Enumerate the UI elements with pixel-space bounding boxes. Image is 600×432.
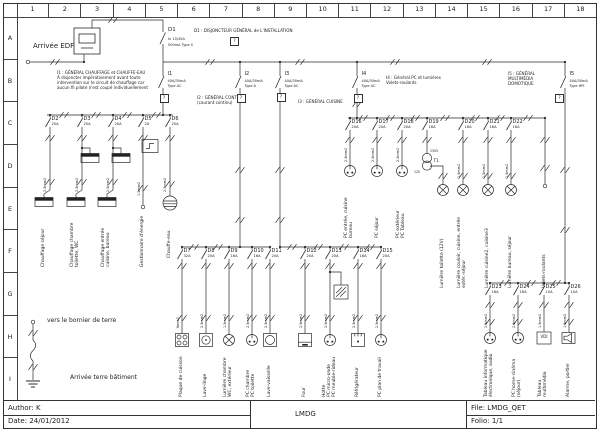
breaker-amp: 10A [571, 290, 578, 294]
wire-size: 1.5mm2 [563, 314, 567, 328]
wire-size: 6mm2 [176, 317, 180, 328]
folio-field: Folio: 1/1 [471, 417, 503, 425]
folio-ref-box: ? [354, 94, 363, 103]
main-breaker-note: D1 : DISJONCTEUR GÉNÉRAL de L'INSTALLATI… [194, 28, 293, 33]
title-block-divider [3, 415, 250, 416]
breaker-amp: 20A [383, 254, 390, 258]
socket-icon [376, 335, 387, 346]
breaker-id: D19 [429, 119, 439, 125]
socket-icon [247, 335, 258, 346]
diff-id: I1 [168, 71, 173, 77]
wire-size: 2.5mm2 [106, 178, 110, 192]
breaker-id: D20 [465, 119, 475, 125]
breaker-id: D5 [145, 116, 152, 122]
diff-id: I2 [245, 71, 250, 77]
load-label: Chauffe-eau [168, 231, 173, 258]
breaker-amp: 20A [172, 122, 179, 126]
breaker-amp: 16A [254, 254, 261, 258]
socket-icon [397, 166, 408, 177]
load-label: Réfrigérateur [356, 367, 361, 397]
heater-icon [98, 198, 116, 207]
heater-icon [67, 198, 85, 207]
breaker-id: D22 [513, 119, 523, 125]
folio-ref-box: ? [277, 93, 286, 102]
earth-top-label: vers le bornier de terre [47, 317, 116, 324]
breaker-id: D3 [84, 116, 91, 122]
diff-note: I1 : GÉNÉRAL CHAUFFAGE et CHAUFFE-EAU À … [57, 70, 148, 90]
breaker-amp: 20A [84, 122, 91, 126]
diff-type: Type AC [168, 84, 182, 88]
breaker-amp: 10A [546, 290, 553, 294]
load-label: Plaque de cuisson [180, 356, 185, 397]
socket-icon [372, 166, 383, 177]
lamp-icon [458, 185, 469, 196]
wire-size: 2.5mm2 [484, 314, 488, 328]
load-label: PC séjour [376, 217, 381, 238]
wire-size: 1.5mm2 [482, 164, 486, 178]
main-breaker-rating: In 10/45A [168, 37, 185, 41]
wire-size: 1.5mm2 [505, 164, 509, 178]
breaker-amp: 16A [492, 290, 499, 294]
breaker-amp: 20A [208, 254, 215, 258]
socket-icon [325, 335, 336, 346]
breaker-amp: 20A [404, 125, 411, 129]
transformer-primary-voltage: 230V [430, 149, 438, 153]
lamp-icon [483, 185, 494, 196]
transformer-icon [422, 153, 431, 170]
breaker-id: D21 [490, 119, 500, 125]
breaker-amp: 16A [520, 290, 527, 294]
load-label: Four [303, 387, 308, 397]
folio-ref-box: ? [555, 94, 564, 103]
folio-ref-box: ? [237, 94, 246, 103]
diff-rating: 40A/30mA [570, 79, 588, 83]
load-label: Lumière chambre WC, extérieur [224, 358, 234, 397]
diff-rating: 40A/30mA [168, 79, 186, 83]
load-label: Tableau multimédia [539, 371, 549, 397]
wire-size: 2.5mm2 [299, 314, 303, 328]
socket-icon [513, 333, 524, 344]
incoming-label: Arrivée EDF [33, 42, 74, 50]
title-block-divider [250, 401, 251, 429]
heater-icon [112, 154, 130, 163]
dishwasher-icon [264, 334, 277, 347]
breaker-id: D17 [379, 119, 389, 125]
alarm-speaker-icon [562, 333, 575, 344]
breaker-amp: 20A [307, 254, 314, 258]
earth-bottom-label: Arrivée terre bâtiment [70, 374, 137, 381]
wire-size: 2.5mm2 [512, 314, 516, 328]
main-breaker-id: D1 [168, 27, 176, 33]
breaker-id: D23 [492, 284, 502, 290]
breaker-id: D7 [184, 248, 191, 254]
wire-size: 2.5mm2 [200, 314, 204, 328]
wire-size: 1.5mm2 [457, 164, 461, 178]
load-label: Lumière bureau, séjour [509, 236, 514, 288]
load-label: PC home-cinéma (séjour) [513, 359, 523, 397]
energy-meter-icon [74, 28, 100, 54]
earth-ground-icon [26, 381, 40, 387]
heater-icon [81, 154, 99, 163]
load-label: Gestionnaire d'énergie [141, 216, 146, 267]
breaker-id: D10 [254, 248, 264, 254]
breaker-id: D18 [404, 119, 414, 125]
load-label: Hotte PC micro-onde PC meuble-rideau [323, 357, 338, 397]
breaker-amp: 16A [465, 125, 472, 129]
load-label: Alarme, portier [567, 363, 572, 397]
transformer-secondary-voltage: 12V [414, 170, 420, 174]
shutter-terminal-icon [543, 184, 547, 188]
supply-terminal-icon [26, 60, 30, 64]
washing-machine-icon [200, 334, 213, 347]
wire-size: 1.5mm2 [538, 314, 542, 328]
load-label: Lumière toilette (12V) [441, 239, 446, 288]
load-label: PC chambre PC toilette [247, 370, 257, 397]
pilot-terminal-icon [141, 205, 145, 209]
breaker-amp: 16A [231, 254, 238, 258]
wire-size: 2.5mm2 [396, 148, 400, 162]
diff-note: I5 : GÉNÉRAL MULTIMÉDIA DOMOTIQUE [508, 71, 535, 86]
load-label: PC entrée, cuisine bureau [345, 197, 355, 238]
breaker-amp: 32A [184, 254, 191, 258]
diff-type: Type AC [362, 84, 376, 88]
diff-note: I3 : GÉNÉRAL CUISINE [298, 99, 343, 104]
project-title: LMDG [295, 410, 316, 418]
load-label: Tableau informatique électronique, audio [485, 349, 495, 397]
wire-size: 2.5mm2 [75, 178, 79, 192]
lamp-icon [224, 335, 235, 346]
breaker-amp: 20A [272, 254, 279, 258]
breaker-amp: 20A [332, 254, 339, 258]
breaker-id: D13 [332, 248, 342, 254]
wire-size: 2.5mm2 [324, 314, 328, 328]
heater-icon [35, 198, 53, 207]
breaker-id: D15 [383, 248, 393, 254]
diff-rating: 40A/30mA [245, 79, 263, 83]
load-label: Volets-roulants [543, 254, 548, 288]
breaker-amp: 20A [115, 122, 122, 126]
date-field: Date: 24/01/2012 [8, 417, 70, 425]
breaker-id: D26 [571, 284, 581, 290]
lamp-icon [506, 185, 517, 196]
lamp-icon [438, 185, 449, 196]
breaker-id: D9 [231, 248, 238, 254]
wire-size: 1.5mm2 [137, 182, 141, 196]
diff-type: Type HPI [570, 84, 585, 88]
diff-id: I4 [362, 71, 367, 77]
breaker-amp: 20A [52, 122, 59, 126]
wire-size: 1.5mm2 [223, 314, 227, 328]
folio-ref-box: ? [230, 37, 239, 46]
wire-size: 2.5mm2 [371, 148, 375, 162]
diff-note: I4 : Général PC et lumières Volets-roula… [386, 75, 441, 85]
breaker-id: D14 [360, 248, 370, 254]
earth-terminal-icon [31, 320, 35, 324]
breaker-id: D8 [208, 248, 215, 254]
breaker-id: D4 [115, 116, 122, 122]
energy-manager-icon [142, 140, 158, 153]
diff-type: Type A [245, 84, 257, 88]
load-icons [26, 60, 575, 387]
breaker-id: D11 [272, 248, 282, 254]
load-label: Lumière couloir, cuisine, entrée extér.-… [458, 217, 468, 288]
diff-rating: 40A/30mA [362, 79, 380, 83]
breaker-id: D16 [352, 119, 362, 125]
wiring-canvas [0, 0, 600, 432]
load-label: Chauffage chambre toilette, WC [71, 223, 81, 267]
folio-ref-box: ? [160, 94, 169, 103]
load-label: PC extérieur PC Tableau [397, 210, 407, 238]
wire-size: 2.5mm2 [163, 178, 167, 192]
breaker-id: D6 [172, 116, 179, 122]
load-label: PC plan de travail [379, 357, 384, 397]
breaker-amp: 16A [490, 125, 497, 129]
oven-icon [299, 334, 312, 347]
wire-size: 2.5mm2 [264, 314, 268, 328]
wire-size: 2.5mm2 [246, 314, 250, 328]
wire-size: 2.5mm2 [352, 314, 356, 328]
breaker-id: D24 [520, 284, 530, 290]
diff-type: Type AC [285, 84, 299, 88]
breaker-amp: 2A [145, 122, 150, 126]
load-label: Chauffage entrée cuisine, bureau [102, 228, 112, 267]
diff-id: I3 [285, 71, 290, 77]
hood-icon [334, 285, 348, 299]
load-label: Lumière cuisine2, cuisine3 [486, 228, 491, 288]
schematic-sheet: 1 2 3 4 5 6 7 8 9 10 11 12 13 14 15 16 1… [0, 0, 600, 432]
wire-size: 2.5mm2 [375, 314, 379, 328]
title-block: Author: K Date: 24/01/2012 LMDG File: LM… [3, 400, 595, 429]
fridge-icon [352, 334, 365, 347]
title-block-divider [466, 415, 595, 416]
breaker-id: D2 [52, 116, 59, 122]
transformer-id: T1 [434, 158, 439, 163]
breaker-amp: 16A [513, 125, 520, 129]
diff-rating: 40A/30mA [285, 79, 303, 83]
breaker-amp: 16A [429, 125, 436, 129]
wire-size: 2.5mm2 [43, 178, 47, 192]
wire-size: 2.5mm2 [344, 148, 348, 162]
load-label: Chauffage séjour [42, 229, 47, 267]
hob-icon [176, 334, 189, 347]
main-breaker-diff: 500mA Type S [168, 43, 193, 47]
file-field: File: LMDG_QET [471, 404, 526, 412]
socket-icon [345, 166, 356, 177]
diff-id: I5 [570, 71, 575, 77]
breaker-id: D12 [307, 248, 317, 254]
breaker-amp: 20A [352, 125, 359, 129]
socket-icon [485, 333, 496, 344]
water-heater-icon [163, 196, 177, 210]
breaker-amp: 16A [360, 254, 367, 258]
breaker-amp: 20A [379, 125, 386, 129]
author-field: Author: K [8, 404, 41, 412]
load-label: Lave-linge [204, 374, 209, 397]
load-label: Lave-vaisselle [268, 365, 273, 397]
vdi-label: VDI [537, 334, 551, 339]
